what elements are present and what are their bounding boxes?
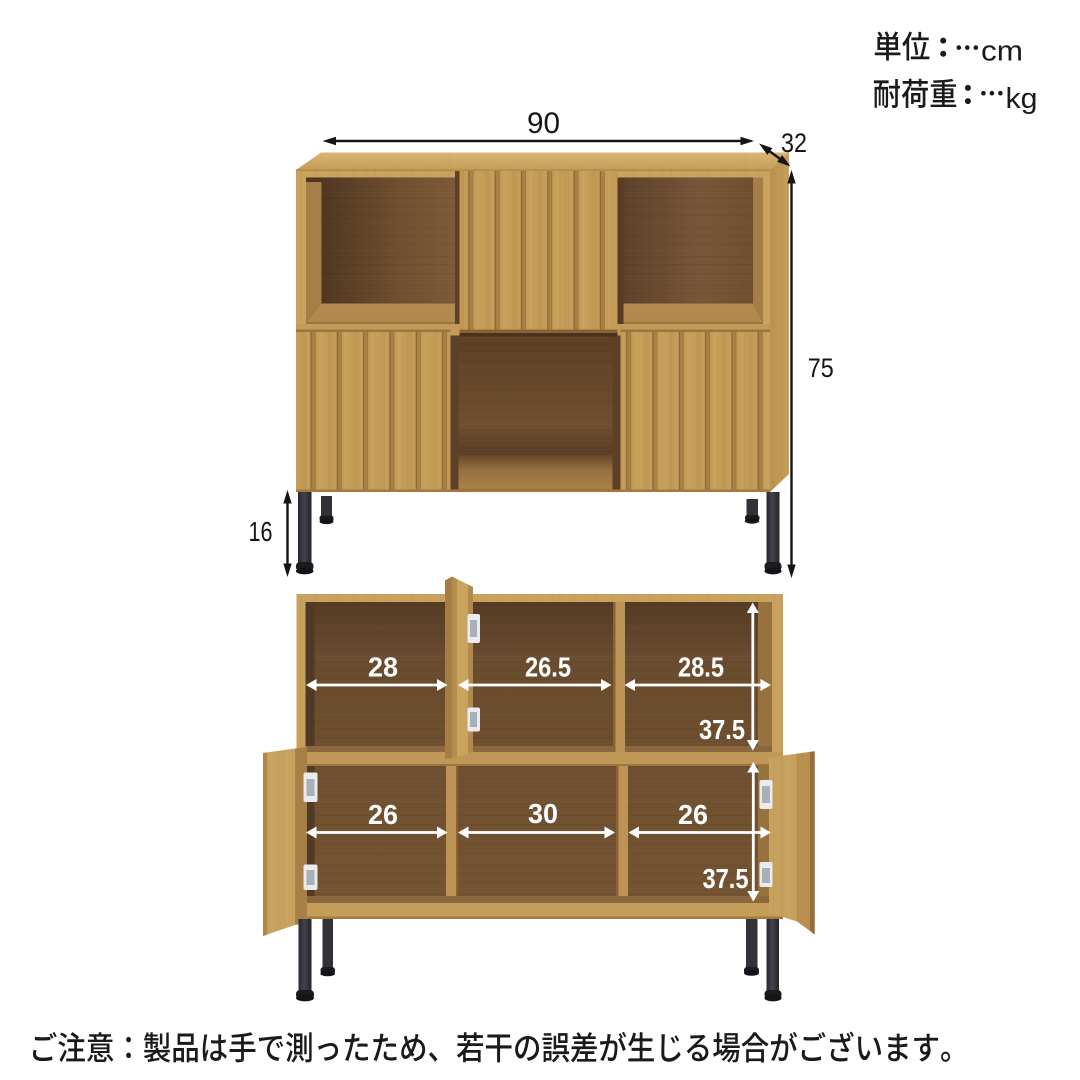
svg-text:37.5: 37.5: [699, 714, 745, 745]
svg-text:cm: cm: [981, 36, 1023, 68]
svg-text:30: 30: [528, 798, 558, 829]
svg-text:26.5: 26.5: [525, 652, 571, 683]
svg-text:75: 75: [808, 353, 834, 383]
svg-text:26: 26: [678, 799, 708, 830]
svg-text:16: 16: [249, 516, 273, 547]
svg-text:32: 32: [781, 128, 807, 158]
svg-text:26: 26: [368, 799, 398, 830]
svg-text:28.5: 28.5: [678, 652, 724, 683]
svg-text:28: 28: [368, 652, 398, 683]
svg-text:kg: kg: [1006, 83, 1038, 115]
svg-text:90: 90: [527, 107, 560, 140]
svg-text:37.5: 37.5: [703, 863, 749, 894]
